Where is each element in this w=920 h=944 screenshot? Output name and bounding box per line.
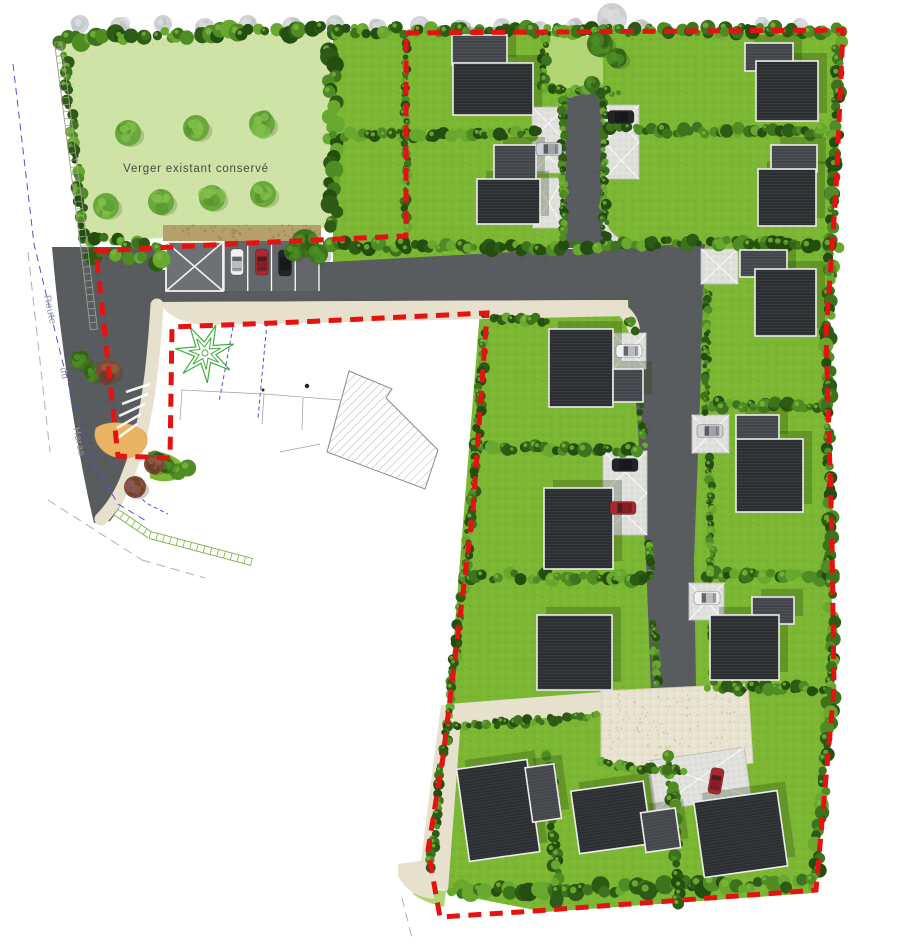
street-word-route: Route bbox=[41, 294, 58, 325]
car bbox=[610, 502, 636, 515]
survey-dot bbox=[262, 389, 265, 392]
parcel-outline bbox=[302, 398, 303, 430]
site-plan-page: Verger existant conservé Route du Haras bbox=[0, 0, 920, 944]
gray-dashed-line bbox=[28, 252, 50, 452]
parcel-outline bbox=[180, 390, 264, 424]
car bbox=[536, 143, 562, 156]
blue-dashed-line bbox=[258, 323, 267, 418]
site-plan: Verger existant conservé Route du Haras bbox=[0, 0, 920, 944]
car bbox=[697, 425, 723, 438]
car bbox=[231, 249, 244, 275]
street-word-du: du bbox=[57, 366, 70, 380]
red-shrub bbox=[124, 476, 149, 499]
house bbox=[537, 607, 621, 690]
car bbox=[616, 345, 642, 358]
car bbox=[694, 592, 720, 605]
survey-dot bbox=[305, 384, 309, 388]
driveway bbox=[701, 249, 738, 284]
orchard-label: Verger existant conservé bbox=[123, 163, 269, 175]
star-planting-symbol bbox=[175, 325, 233, 383]
gray-dashed-line bbox=[142, 560, 205, 578]
house bbox=[544, 480, 622, 569]
top-road bbox=[565, 90, 603, 248]
house bbox=[693, 781, 797, 877]
blue-dashed-line bbox=[219, 327, 233, 402]
car bbox=[256, 249, 269, 275]
car bbox=[608, 111, 634, 124]
existing-tree bbox=[71, 15, 89, 33]
car bbox=[612, 459, 638, 472]
fence-ladder-symbol bbox=[114, 509, 253, 565]
parcel-outline bbox=[264, 394, 340, 400]
gray-dashed-line bbox=[402, 898, 413, 942]
parcel-outline bbox=[280, 444, 320, 452]
existing-building-hatched bbox=[327, 371, 438, 489]
